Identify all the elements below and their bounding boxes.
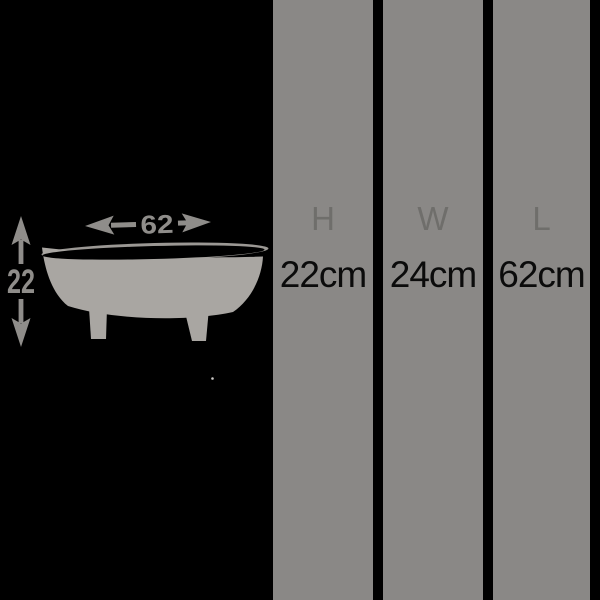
width-dimension-label: 62 [140,209,174,240]
dimension-bar-height: H 22cm [273,0,373,600]
bar-value-width: 24cm [383,256,483,293]
drip-dot-icon [211,377,214,380]
bar-letter-w: W [383,202,483,235]
arrow-shaft-top [19,240,24,264]
arrow-left-icon [85,216,115,236]
bar-letter-h: H [273,202,373,235]
height-dimension-arrow: 22 [7,216,35,347]
height-dimension-label: 22 [7,263,35,301]
arrow-shaft-left [111,222,136,228]
dimension-bar-width: W 24cm [383,0,483,600]
bar-value-height: 22cm [273,256,373,293]
width-dimension-arrow: 62 [85,208,212,242]
bar-letter-l: L [493,202,590,235]
canvas: 62 22 H 22cm W 24cm L 62cm [0,0,600,600]
arrow-shaft-bottom [19,299,24,323]
dimension-bar-length: L 62cm [493,0,590,600]
bar-value-length: 62cm [493,256,590,293]
